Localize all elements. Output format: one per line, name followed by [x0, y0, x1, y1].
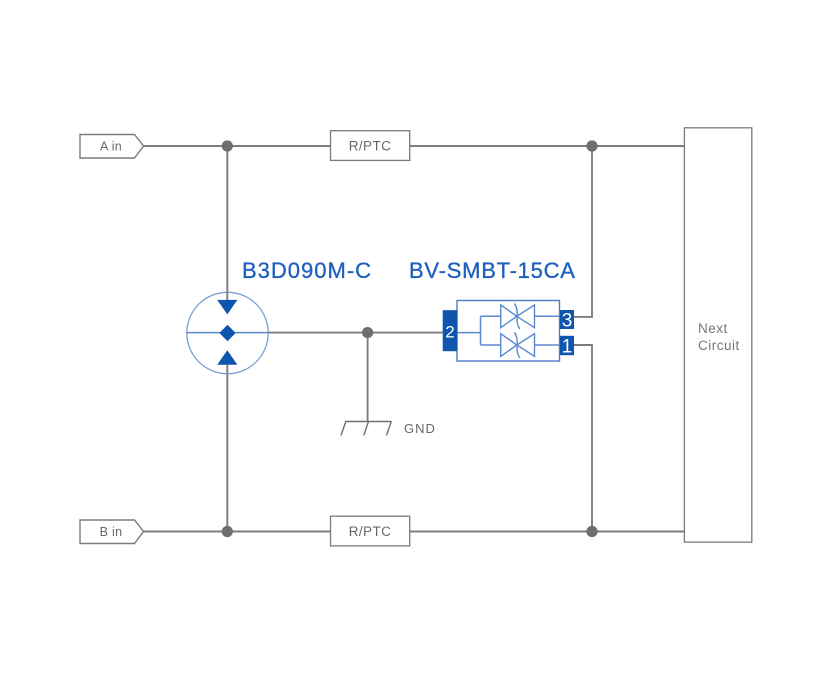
- svg-text:Circuit: Circuit: [698, 338, 740, 353]
- svg-text:Next: Next: [698, 321, 728, 336]
- svg-text:R/PTC: R/PTC: [349, 524, 392, 539]
- svg-text:1: 1: [562, 336, 573, 357]
- svg-text:GND: GND: [404, 421, 436, 436]
- svg-text:3: 3: [562, 311, 573, 332]
- svg-text:R/PTC: R/PTC: [349, 139, 392, 154]
- svg-text:2: 2: [445, 323, 454, 342]
- svg-text:A in: A in: [100, 140, 122, 154]
- svg-text:B3D090M-C: B3D090M-C: [242, 258, 372, 283]
- svg-text:B in: B in: [100, 525, 123, 539]
- svg-text:BV-SMBT-15CA: BV-SMBT-15CA: [409, 258, 576, 283]
